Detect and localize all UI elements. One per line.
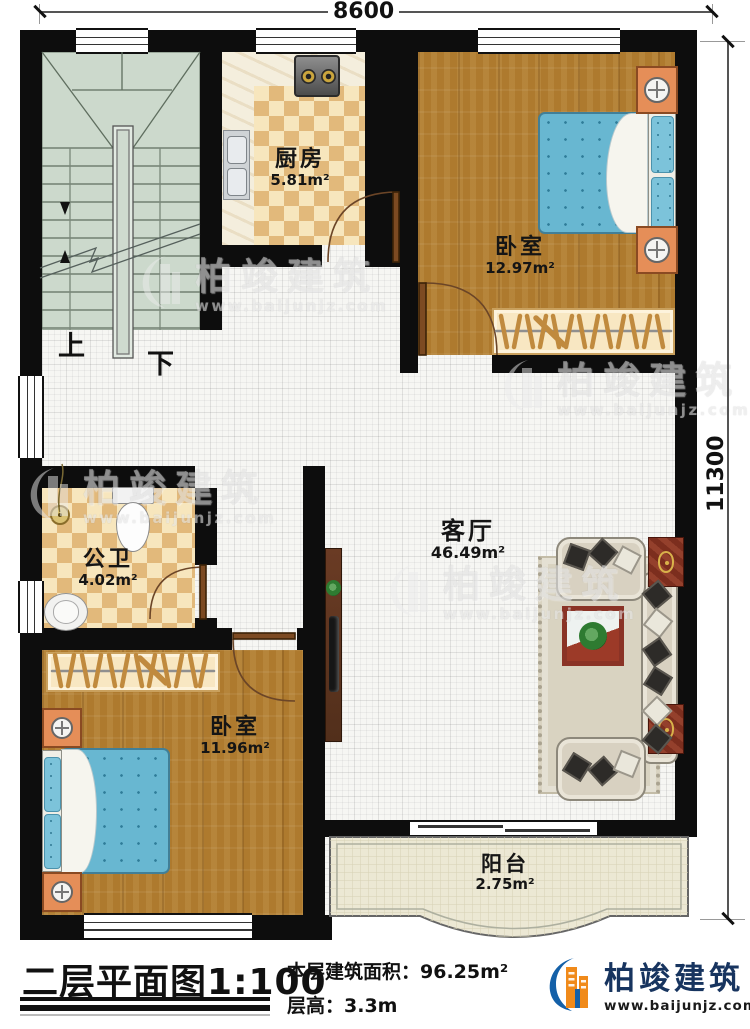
lamp-icon	[644, 237, 670, 263]
wall-left	[20, 30, 42, 940]
dimension-top-label: 8600	[328, 0, 399, 24]
pillow	[651, 116, 674, 173]
brand-logo-text: 柏竣建筑 www.baijunjz.com	[604, 953, 750, 1014]
room-name: 阳台	[435, 853, 575, 876]
label-kitchen: 厨房 5.81m²	[240, 148, 360, 189]
sliding-door-balcony	[410, 820, 597, 837]
dimension-ext	[700, 41, 745, 42]
wall-kitchen-bottom	[222, 245, 322, 267]
wall-living-bottom-a	[325, 820, 410, 837]
brand-logo: 柏竣建筑 www.baijunjz.com	[546, 953, 750, 1014]
floor-area-label: 本层建筑面积：	[287, 961, 420, 983]
burner-icon	[301, 69, 316, 84]
wall-bathroom-bedroom	[20, 628, 232, 650]
label-living: 客厅 46.49m²	[398, 518, 538, 562]
end-table	[648, 537, 684, 587]
label-balcony: 阳台 2.75m²	[435, 853, 575, 893]
wall-living-bottom-b	[597, 820, 697, 837]
nightstand	[42, 708, 82, 748]
window-stairwell	[76, 28, 148, 54]
brand-logo-icon	[546, 956, 596, 1012]
wall-bathroom-right-a	[195, 488, 217, 565]
title-rule	[20, 1014, 270, 1016]
label-bedroom-top: 卧室 12.97m²	[455, 236, 585, 277]
nightstand	[42, 872, 82, 912]
nightstand	[636, 226, 678, 274]
sliding-door-panel	[418, 825, 503, 828]
title-rule	[20, 997, 270, 1001]
window-bedroom-bottom	[84, 913, 252, 940]
stove	[294, 55, 340, 97]
dimension-right-label: 11300	[705, 437, 729, 517]
tv	[329, 616, 339, 692]
plan-stats: 本层建筑面积：96.25m² 层高：3.3m	[287, 957, 508, 1025]
stairwell-floor	[42, 52, 200, 330]
sliding-door-panel	[505, 829, 590, 832]
room-name: 公卫	[48, 548, 168, 572]
floor-area-value: 96.25m²	[420, 961, 508, 983]
bathroom-sink	[44, 593, 88, 631]
wall-bedroom-top-bottom	[492, 355, 675, 373]
room-area: 2.75m²	[435, 876, 575, 893]
window-hall-left	[18, 376, 44, 458]
room-name: 卧室	[455, 236, 585, 260]
room-name: 客厅	[398, 518, 538, 544]
floor-height-row: 层高：3.3m	[287, 991, 508, 1018]
window-bedroom-top	[478, 28, 620, 54]
dimension-ext	[700, 919, 745, 920]
label-bedroom-bottom: 卧室 11.96m²	[165, 716, 305, 757]
pillow	[44, 814, 61, 869]
wardrobe-top	[492, 308, 675, 355]
wall-bedroom-bottom-right	[303, 650, 325, 915]
room-area: 11.96m²	[165, 740, 305, 757]
lamp-icon	[644, 77, 670, 103]
title-rule	[20, 1005, 270, 1011]
wardrobe-bottom	[46, 652, 220, 692]
wall-hall-divider	[303, 466, 325, 650]
floor-height-label: 层高：	[287, 995, 344, 1017]
brand-name: 柏竣建筑	[604, 953, 750, 998]
shower-head	[50, 505, 70, 525]
floor-plan: 厨房 5.81m² 卧室 12.97m² 公卫 4.02m² 客厅 46.49m…	[0, 0, 750, 1029]
floor-height-value: 3.3m	[344, 995, 397, 1017]
plant-icon	[579, 622, 607, 650]
room-area: 12.97m²	[455, 260, 585, 277]
label-bathroom: 公卫 4.02m²	[48, 548, 168, 589]
pillow	[44, 757, 61, 812]
floor-area-row: 本层建筑面积：96.25m²	[287, 957, 508, 984]
stairs-down-label: 下	[147, 342, 174, 381]
wall-stair-right	[200, 52, 222, 330]
room-name: 厨房	[240, 148, 360, 172]
stairs-up-label: 上	[58, 324, 85, 363]
brand-website: www.baijunjz.com	[604, 998, 750, 1014]
lamp-icon	[51, 717, 73, 739]
wall-mid-vertical	[400, 267, 418, 373]
title-bar: 二层平面图1:100 本层建筑面积：96.25m² 层高：3.3m	[0, 945, 750, 1029]
plant-icon	[326, 580, 341, 596]
burner-icon	[321, 69, 336, 84]
wall-bathroom-top	[42, 466, 195, 488]
lamp-icon	[51, 881, 73, 903]
window-bathroom	[18, 581, 44, 633]
bed-bottom-sheet-fold	[61, 749, 97, 873]
room-area: 4.02m²	[48, 572, 168, 589]
window-kitchen	[256, 28, 356, 54]
room-name: 卧室	[165, 716, 305, 740]
wall-kitchen-right	[365, 52, 418, 267]
room-area: 5.81m²	[240, 172, 360, 189]
nightstand	[636, 66, 678, 114]
room-area: 46.49m²	[398, 544, 538, 562]
